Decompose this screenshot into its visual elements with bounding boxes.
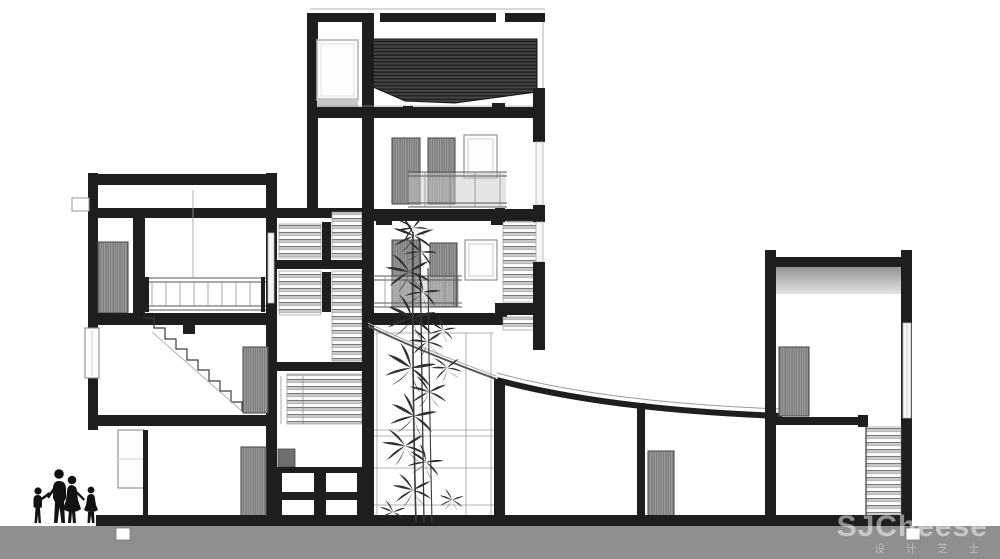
stair-newel [183,325,195,334]
stair-flight [332,271,362,361]
footing [116,528,130,540]
door-ground-floor [241,447,266,523]
pavilion-stair [866,427,901,517]
left-roof-slab [88,174,272,185]
landing-slab [277,362,362,371]
pavilion-roof-slab [765,257,912,267]
core-wall-stub [322,222,331,260]
stair-flight [503,222,536,302]
stair-flight [279,224,321,258]
pavilion-floor-slab [765,417,866,425]
stair-flight [503,317,536,330]
mid-floor-slab [88,313,277,325]
ceiling-band [776,267,901,294]
stair-shaft-skylight [317,40,358,108]
architectural-section-drawing: SJCheese 设 计 芝 士 [0,0,1000,559]
parapet-cap [72,198,89,211]
door-upper-floor [98,242,128,313]
stair-flight [287,374,362,424]
cabinet [278,449,295,467]
door-mid-floor [243,347,268,413]
left-exterior-wall [88,173,98,430]
stair-newel [858,415,868,427]
section-canvas: SJCheese 设 计 芝 士 [0,0,1000,559]
courtyard-right-wall [494,379,505,523]
lower-floor-slab [88,415,277,426]
tower-roof-slab [307,107,545,118]
pavilion-left-wall [765,257,776,527]
parapet-band [307,13,545,22]
shaft-wall [362,13,374,107]
wing-mid-wall [637,403,645,518]
watermark-caption: 设 计 芝 士 [874,542,988,555]
roof-hatch-basin [373,39,537,103]
stair-flight [279,271,321,315]
ceiling-beam [98,208,365,218]
door-pavilion [779,347,809,416]
party-wall-window [268,233,274,303]
landing-slab [277,260,362,269]
door-wing [648,451,674,517]
core-wall-stub [322,272,331,312]
tower-right-wall [533,88,545,350]
window [465,240,497,280]
courtyard [368,323,505,524]
interior-wall [133,218,145,314]
floor-slab [362,313,507,325]
balcony-glass [409,173,506,206]
watermark-brand: SJCheese [837,510,988,543]
stair-flight [332,212,362,258]
